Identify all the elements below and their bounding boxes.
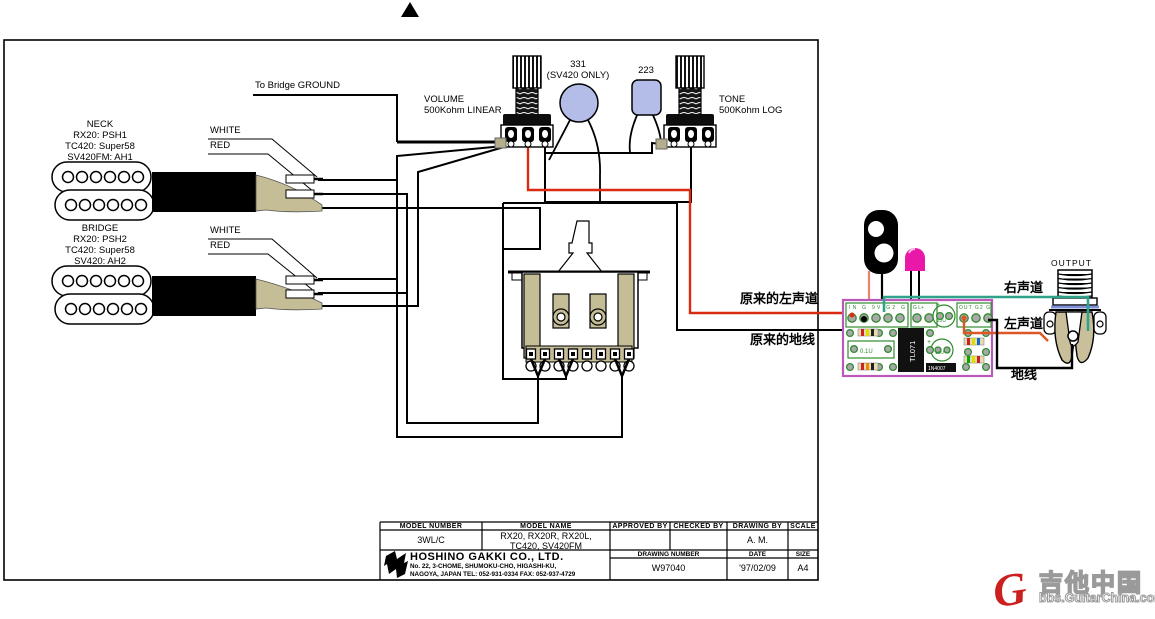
pcb-pad-labels-right: OUT G2 G bbox=[959, 305, 990, 311]
orig-left-channel-label: 原来的左声道 bbox=[740, 292, 818, 307]
pcb-cap-film-label: 0.1U bbox=[860, 349, 873, 355]
th-scale: SCALE bbox=[788, 523, 818, 531]
capacitor-223 bbox=[632, 80, 661, 115]
model-number-value: 3WL/C bbox=[380, 535, 482, 545]
out-junction-dot bbox=[962, 316, 967, 321]
th-date: DATE bbox=[727, 551, 788, 558]
battery-snap bbox=[864, 210, 898, 274]
company-name: HOSHINO GAKKI CO., LTD. bbox=[410, 551, 564, 564]
to-bridge-ground-label: To Bridge GROUND bbox=[255, 81, 340, 92]
tone-lugs bbox=[668, 127, 714, 147]
pcb-diode-label: 1N4007 bbox=[928, 366, 946, 372]
drawing-number-value: W97040 bbox=[610, 563, 727, 573]
th-drawing-number: DRAWING NUMBER bbox=[610, 551, 727, 558]
ground-label: 地线 bbox=[1011, 368, 1037, 383]
bridge-pickup bbox=[52, 266, 154, 324]
th-approved-by: APPROVED BY bbox=[610, 523, 670, 531]
pcb-plus2: + bbox=[927, 339, 931, 346]
drawing-by-value: A. M. bbox=[727, 535, 788, 545]
date-value: '97/02/09 bbox=[727, 563, 788, 573]
neck-cable bbox=[152, 172, 323, 212]
output-label: OUTPUT bbox=[1051, 259, 1092, 269]
wiring-diagram-page: IN G 9V G2 G G L+ OUT G2 G + 22U 0.1U + … bbox=[0, 0, 1155, 619]
bridge-pickup-label: BRIDGERX20: PSH2 TC420: Super58SV420: AH… bbox=[40, 224, 160, 268]
pcb-ic-label: TL071 bbox=[908, 341, 917, 362]
preamp-pcb: IN G 9V G2 G G L+ OUT G2 G + 22U 0.1U + … bbox=[843, 300, 992, 376]
output-jack bbox=[1044, 270, 1106, 363]
neck-pickup-label: NECKRX20: PSH1 TC420: Super58SV420FM: AH… bbox=[40, 120, 160, 164]
th-checked-by: CHECKED BY bbox=[670, 523, 727, 531]
bridge-red-label: RED bbox=[210, 241, 230, 252]
pcb-cap-top-label: 22U bbox=[937, 318, 946, 324]
company-address: No. 22, 3-CHOME, SHUMOKU-CHO, HIGASHI-KU… bbox=[410, 563, 575, 579]
volume-ground-tab bbox=[495, 138, 506, 148]
th-drawing-by: DRAWING BY bbox=[727, 523, 788, 531]
neck-white-label: WHITE bbox=[210, 126, 241, 137]
pcb-cap-lower-label: 10U bbox=[935, 350, 944, 356]
in-junction-dot bbox=[850, 313, 855, 318]
tone-label: TONE500Kohm LOG bbox=[719, 95, 782, 117]
volume-lugs bbox=[505, 127, 551, 147]
cap-331-label: 331(SV420 ONLY) bbox=[528, 60, 628, 82]
bridge-white-label: WHITE bbox=[210, 226, 241, 237]
watermark: G 吉他中国 bbs.GuitarChina.com bbox=[993, 561, 1153, 613]
bridge-cable bbox=[152, 276, 323, 316]
neck-red-label: RED bbox=[210, 141, 230, 152]
switch-lever bbox=[558, 221, 602, 272]
cap-223-label: 223 bbox=[626, 66, 666, 77]
orig-ground-label: 原来的地线 bbox=[750, 333, 815, 348]
hoshino-logo bbox=[384, 551, 408, 578]
th-model-number: MODEL NUMBER bbox=[380, 523, 482, 531]
th-size: SIZE bbox=[788, 551, 818, 558]
volume-label: VOLUME500Kohm LINEAR bbox=[424, 95, 502, 117]
pcb-plus1: + bbox=[936, 302, 940, 309]
right-channel-label: 右声道 bbox=[1004, 281, 1043, 296]
watermark-url: bbs.GuitarChina.com bbox=[1039, 591, 1155, 605]
capacitor-331 bbox=[560, 84, 598, 122]
size-value: A4 bbox=[788, 563, 818, 573]
ground-junction-dot bbox=[861, 316, 867, 322]
model-name-value: RX20, RX20R, RX20L,TC420, SV420FM bbox=[482, 531, 610, 552]
left-channel-label: 左声道 bbox=[1004, 317, 1043, 332]
tone-ground-tab bbox=[656, 139, 667, 149]
watermark-g-logo: G bbox=[989, 561, 1029, 618]
th-model-name: MODEL NAME bbox=[482, 523, 610, 531]
neck-pickup bbox=[52, 162, 154, 220]
pcb-pad-labels-mid: G L+ bbox=[913, 305, 924, 311]
orientation-triangle-icon bbox=[401, 2, 419, 17]
five-way-switch bbox=[508, 221, 650, 376]
